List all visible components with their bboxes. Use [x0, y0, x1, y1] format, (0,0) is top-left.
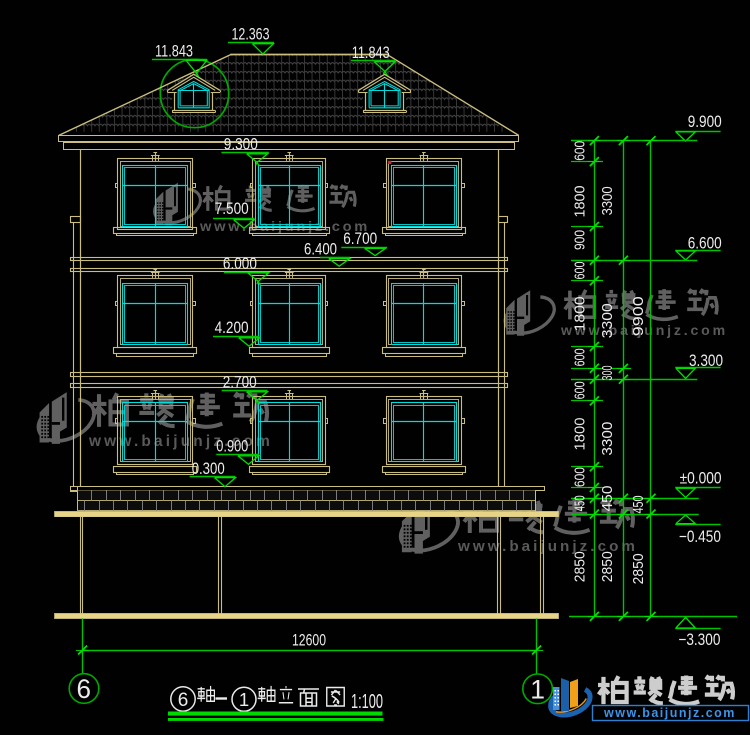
svg-text:600: 600 [573, 141, 589, 161]
svg-text:600: 600 [573, 262, 589, 280]
svg-text:3300: 3300 [600, 303, 616, 338]
svg-text:0.300: 0.300 [192, 460, 225, 478]
svg-text:450: 450 [600, 486, 616, 512]
svg-text:6.400: 6.400 [304, 240, 337, 258]
svg-text:7.500: 7.500 [215, 200, 249, 218]
svg-text:±0.000: ±0.000 [680, 469, 722, 487]
svg-text:900: 900 [573, 230, 589, 250]
svg-text:2850: 2850 [631, 553, 647, 584]
svg-text:12600: 12600 [292, 631, 326, 649]
svg-text:1800: 1800 [573, 418, 589, 451]
svg-text:11.843: 11.843 [352, 44, 390, 62]
svg-text:1:100: 1:100 [351, 691, 383, 713]
svg-text:2.700: 2.700 [223, 374, 257, 392]
svg-text:6: 6 [77, 674, 92, 704]
svg-text:12.363: 12.363 [232, 25, 270, 43]
svg-text:3300: 3300 [600, 422, 616, 456]
svg-text:11.843: 11.843 [155, 43, 193, 61]
svg-text:9900: 9900 [631, 296, 647, 336]
svg-text:www.baijunjz.com: www.baijunjz.com [603, 706, 736, 720]
svg-text:3300: 3300 [600, 186, 616, 215]
svg-text:450: 450 [573, 495, 589, 511]
svg-text:6: 6 [178, 690, 189, 711]
svg-text:1800: 1800 [573, 296, 589, 331]
svg-text:6.700: 6.700 [343, 230, 377, 248]
svg-text:600: 600 [573, 381, 589, 399]
svg-text:−3.300: −3.300 [678, 631, 720, 649]
svg-text:9.900: 9.900 [688, 113, 722, 131]
svg-text:4.200: 4.200 [215, 319, 249, 337]
svg-text:2850: 2850 [600, 551, 616, 582]
svg-text:450: 450 [631, 496, 647, 514]
svg-text:9.300: 9.300 [224, 135, 258, 153]
svg-text:1800: 1800 [573, 186, 589, 218]
svg-text:6.000: 6.000 [223, 255, 257, 273]
svg-text:1: 1 [239, 689, 249, 710]
svg-text:300: 300 [600, 366, 616, 381]
svg-text:1: 1 [530, 675, 545, 705]
svg-text:2850: 2850 [573, 551, 589, 582]
svg-text:−0.450: −0.450 [679, 528, 721, 546]
svg-text:0.900: 0.900 [216, 438, 248, 456]
svg-text:600: 600 [573, 467, 589, 487]
svg-text:600: 600 [573, 348, 589, 366]
